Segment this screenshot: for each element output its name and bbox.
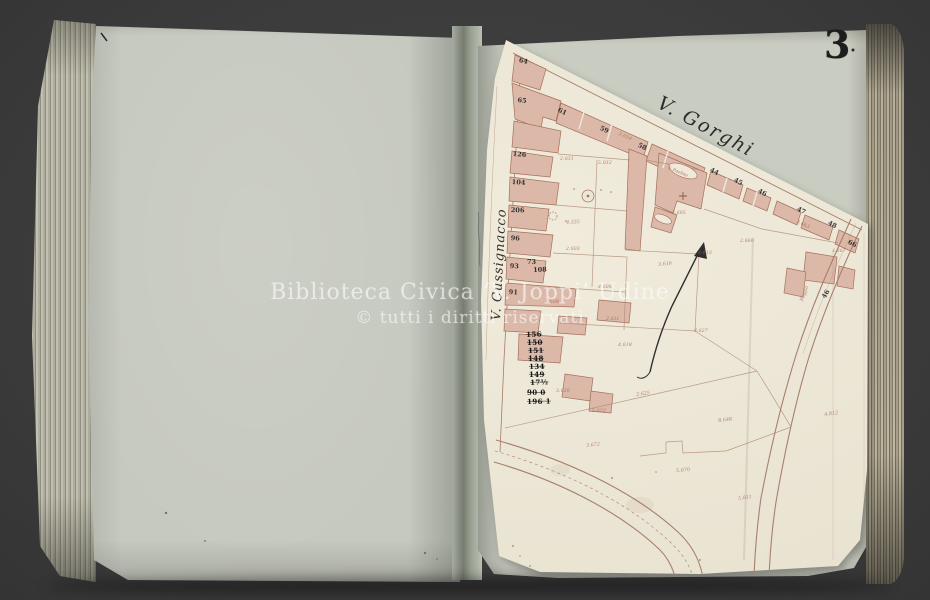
- house-number-label: 104: [512, 178, 526, 187]
- ledger-number-label: 196 1: [527, 397, 551, 406]
- parcel-number-label: 4.606: [598, 284, 612, 290]
- ledger-number-label: 90 0: [527, 388, 546, 397]
- house-number-label: 108: [533, 266, 547, 274]
- parcel-number-label: 3.620: [556, 388, 570, 394]
- page-number: 3: [824, 22, 851, 67]
- parcel-number-label: 2.660: [740, 238, 754, 244]
- house-number-label: 206: [511, 206, 525, 214]
- house-number-label: 93: [510, 262, 519, 270]
- house-number-label: 65: [517, 96, 527, 105]
- parcel-number-label: 2.603: [566, 246, 580, 252]
- house-number-label: 91: [509, 288, 518, 296]
- parcel-number-label: 4.335: [566, 219, 580, 226]
- book-photograph: 3 V. Gorghi V. Cussignacco S. Paolino Ro…: [0, 0, 930, 600]
- parcel-number-label: 5.032: [598, 160, 612, 166]
- house-number-label: 96: [510, 234, 520, 243]
- parcel-number-label: 5.622: [592, 408, 606, 414]
- house-number-label: 126: [512, 150, 526, 159]
- parcel-number-label: 5.670: [676, 467, 690, 474]
- parcel-number-label: 4.627: [694, 328, 708, 334]
- parcel-number-label: 4.667: [832, 248, 846, 254]
- parcel-number-label: 2.605: [672, 210, 686, 216]
- parcel-number-label: 2.031: [560, 156, 574, 162]
- parcel-number-label: 2.611: [606, 316, 619, 322]
- ledger-number-label: 17½: [530, 377, 549, 387]
- house-number-label: 73: [527, 258, 536, 266]
- parcel-number-label: 4.618: [618, 342, 632, 348]
- parcel-number-label: 3.608: [545, 299, 559, 305]
- map-sheet-wrap: [0, 0, 930, 600]
- map-sheet: [0, 0, 930, 600]
- parcel-number-label: 4.613: [698, 250, 712, 256]
